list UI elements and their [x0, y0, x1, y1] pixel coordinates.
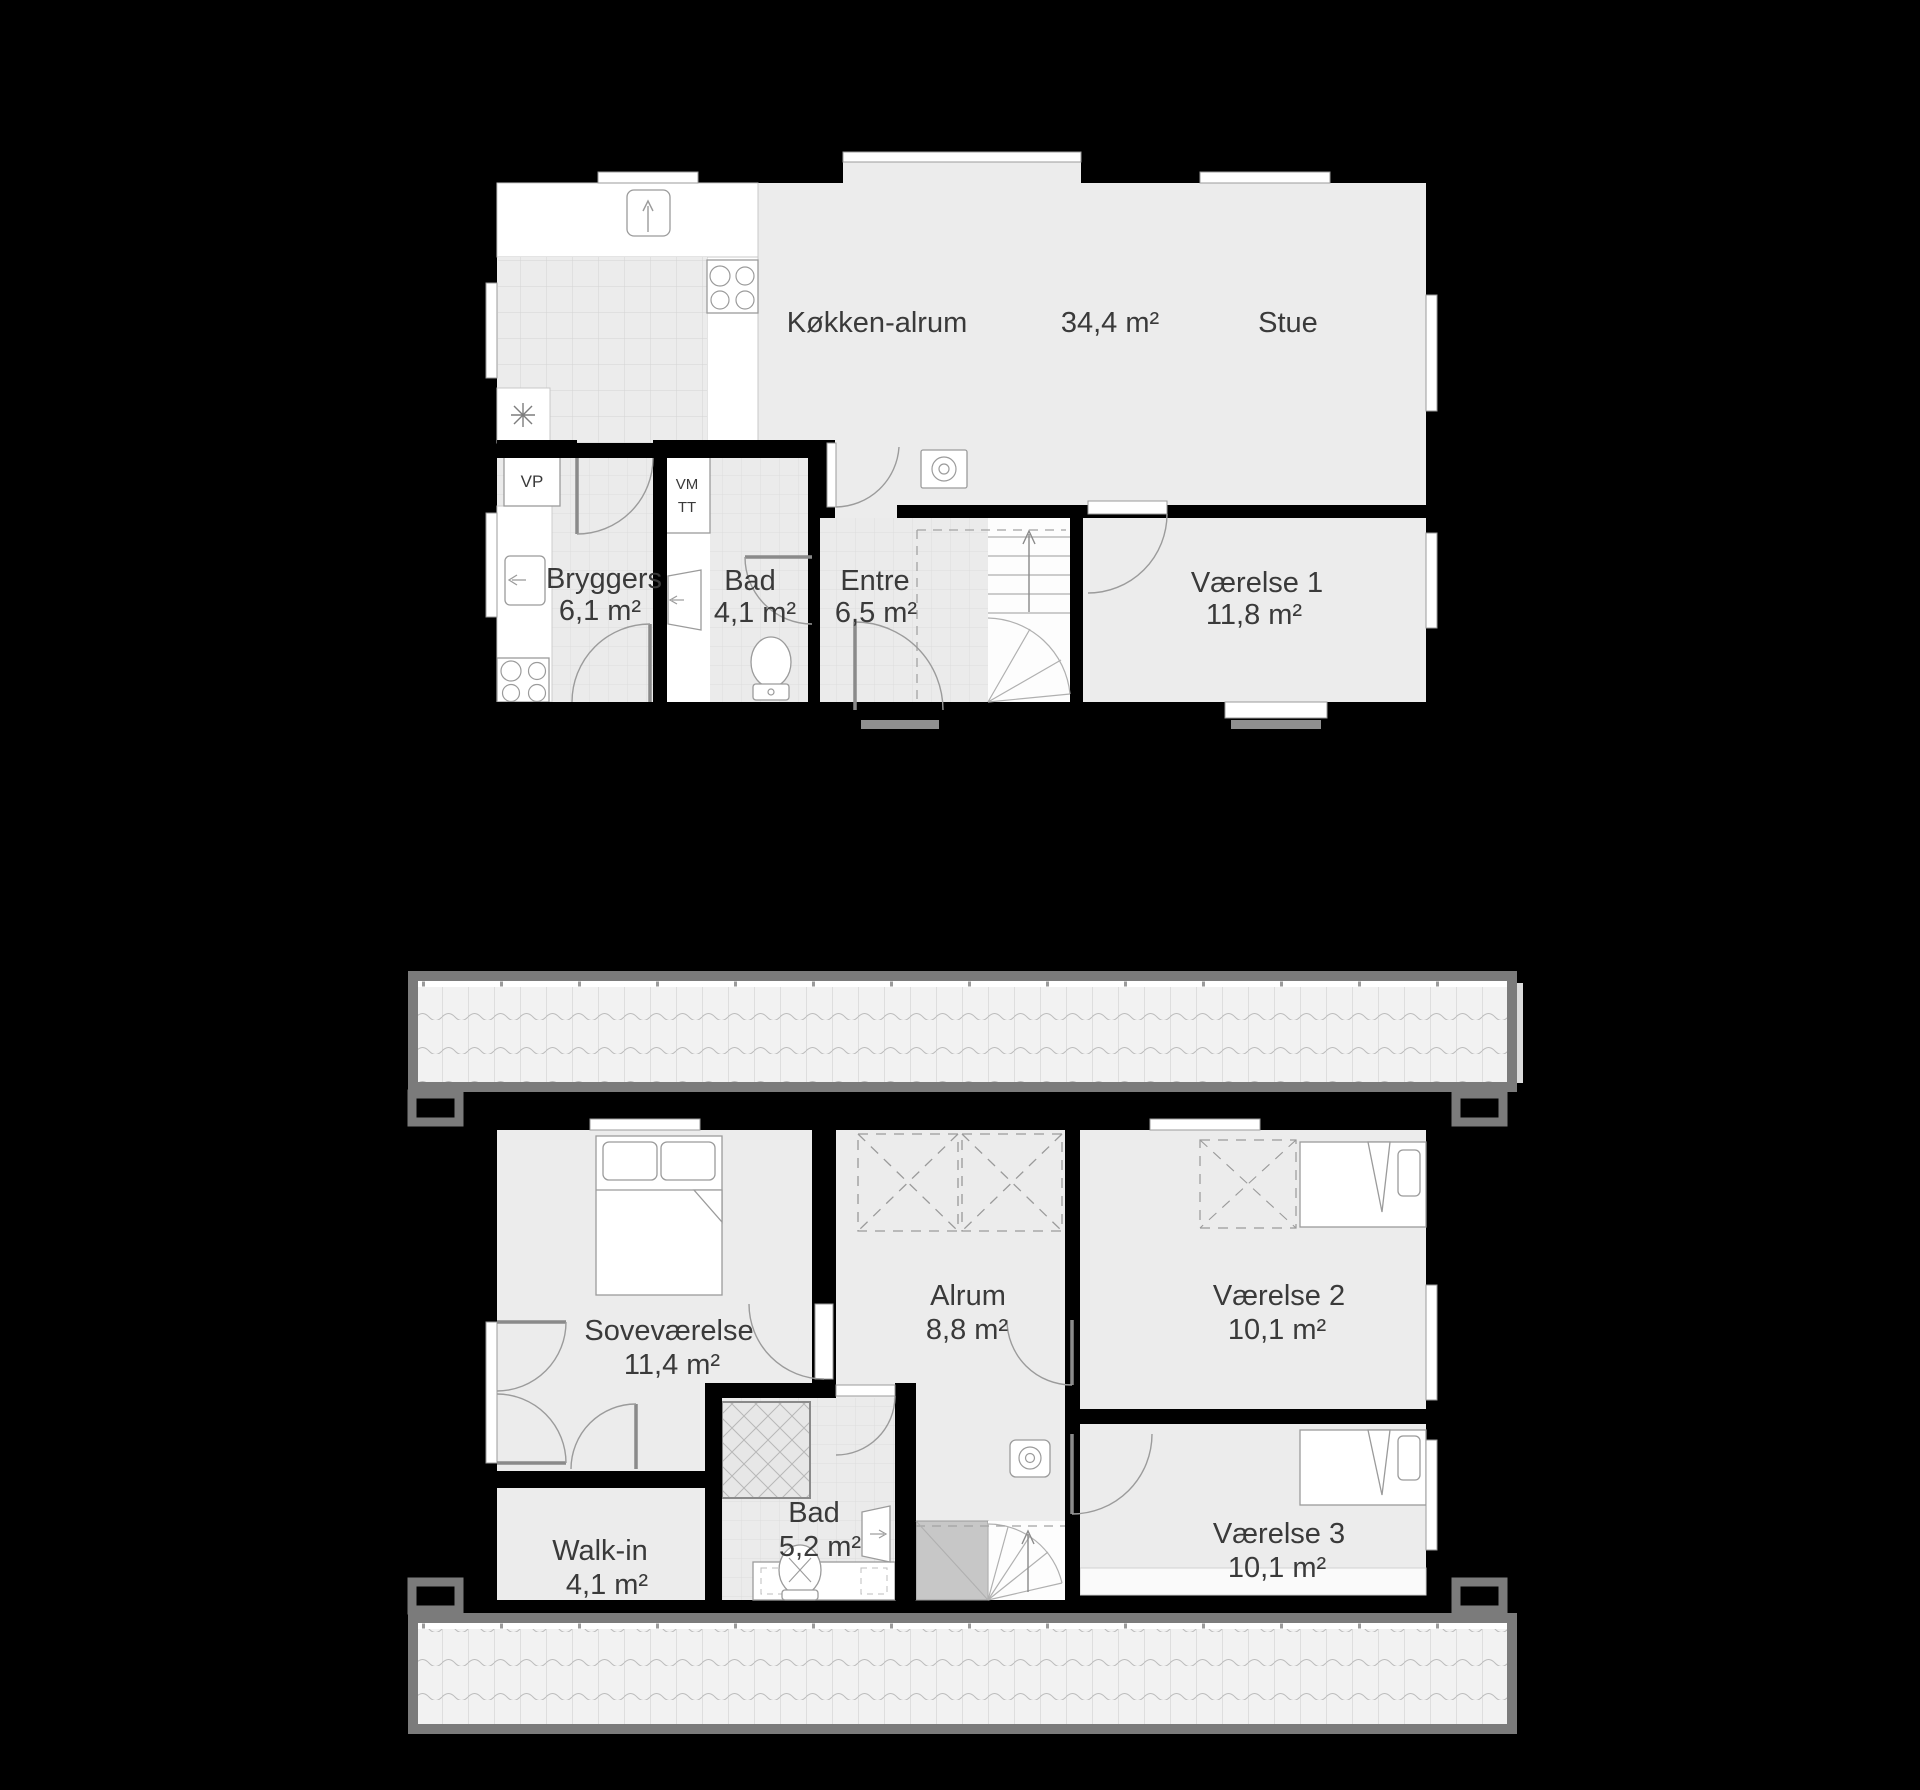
room-area: 11,4 m² [624, 1349, 721, 1381]
room-area: 34,4 m² [1061, 307, 1160, 339]
room-label: Værelse 2 [1213, 1280, 1345, 1312]
window-right-vaerelse-2 [1426, 1285, 1437, 1400]
wall [808, 458, 820, 557]
roof-band-upper [408, 971, 1523, 1122]
wall [497, 440, 577, 458]
wall [1065, 1130, 1080, 1320]
window-bay [843, 152, 1081, 162]
front-door-threshold [861, 720, 939, 729]
bed-vaerelse-3-icon [1300, 1430, 1426, 1505]
window-left-kitchen [486, 283, 497, 378]
window-top-sovevaerelse [590, 1119, 700, 1130]
vanity [753, 1562, 895, 1600]
first-floor-plan: Soveværelse 11,4 m² Alrum 8,8 m² Værelse… [486, 1119, 1437, 1601]
roof-notch-right [1456, 1094, 1503, 1122]
double-bed-icon [596, 1136, 722, 1295]
room-label: Værelse 1 [1191, 567, 1323, 599]
room-area: 8,8 m² [926, 1314, 1009, 1346]
bathroom-sink-icon [668, 570, 701, 630]
kitchen-sink-icon [627, 190, 670, 236]
window-right-vaerelse-1 [1426, 533, 1437, 628]
toilet-icon [751, 637, 791, 700]
roof-tiles [418, 981, 1507, 1082]
floor-plan-svg: VP VM TT [0, 0, 1920, 1790]
room-label: Værelse 3 [1213, 1518, 1345, 1550]
room-area: 4,1 m² [714, 597, 797, 629]
vp-label: VP [521, 472, 544, 491]
window-left-bryggers [486, 513, 497, 617]
utility-sink-icon [505, 556, 545, 605]
wall [1065, 1514, 1080, 1600]
wall [895, 1383, 916, 1600]
wall [497, 1471, 568, 1488]
room-area: 11,8 m² [1206, 599, 1303, 631]
wall [483, 702, 570, 718]
bathroom-2-sink-icon [862, 1506, 890, 1562]
room-area: 4,1 m² [566, 1569, 649, 1601]
wall [897, 505, 1088, 518]
ground-floor-plan: VP VM TT [483, 152, 1440, 729]
wall [1065, 1403, 1080, 1434]
roof-notch-right [1456, 1582, 1503, 1610]
room-area: 10,1 m² [1228, 1314, 1327, 1346]
window-top-stue [1200, 172, 1330, 183]
room-label: Bad [724, 565, 776, 597]
vm-label: VM [676, 476, 699, 493]
floor-plan-image: VP VM TT [0, 0, 1920, 1790]
room-label: Soveværelse [584, 1315, 753, 1347]
wall [808, 630, 820, 702]
wall [1070, 505, 1083, 702]
heat-pump-box: VP [504, 456, 560, 506]
wall [705, 1383, 836, 1398]
window-right-vaerelse-3 [1426, 1440, 1437, 1550]
wall [945, 702, 1225, 718]
wall [653, 440, 835, 458]
room-area: 10,1 m² [1228, 1552, 1327, 1584]
fan-symbol-icon [511, 403, 535, 427]
room-label: Bad [788, 1497, 840, 1529]
wall [1080, 1409, 1426, 1424]
wall [812, 1130, 836, 1304]
room-area: 5,2 m² [779, 1531, 862, 1563]
wall [705, 1398, 722, 1600]
washer-dryer-closet: VM TT [664, 453, 710, 533]
wall [1167, 505, 1426, 518]
room-label: Køkken-alrum [787, 307, 968, 339]
wall [1327, 702, 1440, 718]
cooktop-icon [707, 260, 758, 313]
terrace-door-vaerelse-1 [1225, 702, 1327, 729]
detector-icon [1010, 1440, 1050, 1477]
window-top-vaerelse-2 [1150, 1119, 1260, 1130]
washer-icon [497, 658, 549, 702]
wall [650, 702, 855, 718]
tt-label: TT [678, 499, 696, 516]
roof-notch-left [412, 1094, 459, 1122]
room-label: Walk-in [552, 1535, 648, 1567]
shower-icon [722, 1402, 810, 1498]
room-label: Stue [1258, 307, 1318, 339]
roof-tiles [418, 1623, 1507, 1724]
window-top-kitchen [598, 172, 698, 183]
room-label: Alrum [930, 1280, 1006, 1312]
room-label: Bryggers [546, 563, 662, 595]
room-area: 6,1 m² [559, 595, 642, 627]
room-label: Entre [840, 565, 909, 597]
roof-notch-left [412, 1582, 459, 1610]
roof-band-lower [408, 1582, 1517, 1734]
room-area: 6,5 m² [835, 597, 918, 629]
window-right-stue [1426, 295, 1437, 411]
wood-stove-icon [921, 450, 967, 488]
